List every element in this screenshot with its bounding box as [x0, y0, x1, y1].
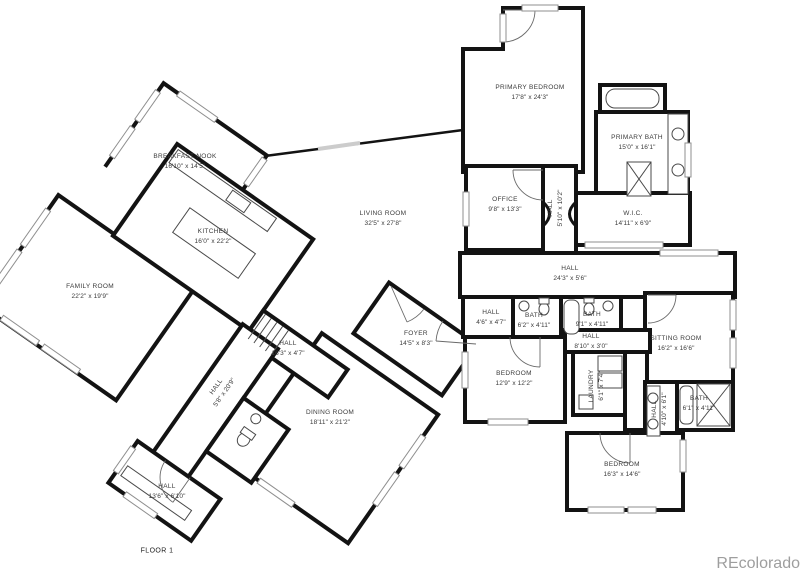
- room-dims: 16'2" x 16'6": [650, 344, 701, 354]
- room-dims: 5'10" x 10'2": [556, 190, 566, 227]
- room-label-foyer: FOYER14'5" x 8'3": [399, 329, 432, 349]
- room-dims: 24'3" x 5'6": [553, 274, 586, 284]
- room-name: PRIMARY BATH: [611, 133, 663, 143]
- room-label-primary-bedroom: PRIMARY BEDROOM17'8" x 24'3": [495, 83, 564, 103]
- sink: [672, 128, 684, 140]
- room-name: HALL: [553, 264, 586, 274]
- floorplan-drawing: [0, 0, 808, 575]
- room-dims: 16'10" x 14'5": [153, 162, 216, 172]
- room-label-dining-room: DINING ROOM18'11" x 21'2": [306, 408, 354, 428]
- room-dims: 6'2" x 4'11": [518, 321, 551, 331]
- room-name: SITTING ROOM: [650, 334, 701, 344]
- room-label-hall-bedroom: HALL8'10" x 3'0": [574, 332, 607, 352]
- floorplan-canvas: PRIMARY BEDROOM17'8" x 24'3" PRIMARY BAT…: [0, 0, 808, 575]
- room-name: HALL: [546, 190, 556, 227]
- room-label-hall-lower: HALL13'6" x 6'10": [149, 482, 186, 502]
- room-name: BEDROOM: [496, 369, 533, 379]
- room-name: PRIMARY BEDROOM: [495, 83, 564, 93]
- bathtub: [606, 89, 659, 108]
- room-name: BATH: [518, 311, 551, 321]
- room-name: BREAKFAST NOOK: [153, 152, 216, 162]
- room-label-office: OFFICE9'8" x 13'3": [488, 195, 521, 215]
- room-dims: 8'10" x 3'0": [574, 342, 607, 352]
- room-name: FOYER: [399, 329, 432, 339]
- room-name: HALL: [476, 308, 506, 318]
- sink: [519, 301, 529, 311]
- room-outline-hall-main: [460, 253, 735, 297]
- left-wing-walls: [0, 66, 508, 575]
- watermark: REcolorado: [716, 555, 800, 573]
- room-label-hall-small: HALL4'6" x 4'7": [476, 308, 506, 328]
- room-name: BEDROOM: [604, 460, 641, 470]
- room-dims: 16'0" x 22'2": [195, 237, 232, 247]
- room-name: BATH: [576, 310, 609, 320]
- room-label-sitting-room: SITTING ROOM16'2" x 16'6": [650, 334, 701, 354]
- room-dims: 14'5" x 8'3": [399, 339, 432, 349]
- room-label-family-room: FAMILY ROOM22'2" x 19'9": [66, 282, 114, 302]
- room-dims: 9'1" x 4'11": [576, 320, 609, 330]
- room-label-bath-3: BATH6'1" x 4'11": [683, 394, 716, 414]
- room-dims: 15'0" x 16'1": [611, 143, 663, 153]
- room-label-hall-sitting: HALL4'10" x 6'1": [650, 392, 670, 425]
- toilet-tank: [539, 298, 549, 304]
- room-dims: 13'6" x 6'10": [149, 492, 186, 502]
- floor-label: FLOOR 1: [141, 548, 174, 555]
- room-label-kitchen: KITCHEN16'0" x 22'2": [195, 227, 232, 247]
- room-name: DINING ROOM: [306, 408, 354, 418]
- room-name: W.I.C.: [615, 209, 651, 219]
- room-label-breakfast-nook: BREAKFAST NOOK16'10" x 14'5": [153, 152, 216, 172]
- room-dims: 4'10" x 6'1": [660, 392, 670, 425]
- room-name: BATH: [683, 394, 716, 404]
- room-label-primary-bath: PRIMARY BATH15'0" x 16'1": [611, 133, 663, 153]
- room-dims: 6'1" x 7'4": [597, 369, 607, 402]
- room-dims: 6'1" x 4'11": [683, 404, 716, 414]
- room-name: OFFICE: [488, 195, 521, 205]
- room-dims: 12'9" x 12'2": [496, 379, 533, 389]
- room-dims: 32'5" x 27'8": [360, 219, 407, 229]
- room-dims: 16'3" x 4'7": [271, 349, 304, 359]
- room-dims: 14'11" x 6'9": [615, 219, 651, 229]
- room-dims: 16'3" x 14'6": [604, 470, 641, 480]
- room-label-hall-west: HALL16'3" x 4'7": [271, 339, 304, 359]
- room-label-living-room: LIVING ROOM32'5" x 27'8": [360, 209, 407, 229]
- room-name: FAMILY ROOM: [66, 282, 114, 292]
- room-dims: 18'11" x 21'2": [306, 418, 354, 428]
- room-name: HALL: [271, 339, 304, 349]
- room-name: KITCHEN: [195, 227, 232, 237]
- room-name: HALL: [149, 482, 186, 492]
- living-room-boundary: [265, 130, 463, 156]
- room-dims: 22'2" x 19'9": [66, 292, 114, 302]
- room-label-laundry: LAUNDRY6'1" x 7'4": [587, 369, 607, 402]
- room-label-bath-1: BATH6'2" x 4'11": [518, 311, 551, 331]
- room-label-hall-upper: HALL5'10" x 10'2": [546, 190, 566, 227]
- room-label-bath-2: BATH9'1" x 4'11": [576, 310, 609, 330]
- room-label-bedroom-2: BEDROOM16'3" x 14'6": [604, 460, 641, 480]
- room-name: LIVING ROOM: [360, 209, 407, 219]
- room-name: LAUNDRY: [587, 369, 597, 402]
- room-name: HALL: [650, 392, 660, 425]
- sink: [672, 164, 684, 176]
- room-label-bedroom-1: BEDROOM12'9" x 12'2": [496, 369, 533, 389]
- toilet-tank: [584, 298, 594, 303]
- room-label-hall-main: HALL24'3" x 5'6": [553, 264, 586, 284]
- room-name: HALL: [574, 332, 607, 342]
- room-dims: 17'8" x 24'3": [495, 93, 564, 103]
- room-dims: 9'8" x 13'3": [488, 205, 521, 215]
- room-label-wic: W.I.C.14'11" x 6'9": [615, 209, 651, 229]
- room-dims: 4'6" x 4'7": [476, 318, 506, 328]
